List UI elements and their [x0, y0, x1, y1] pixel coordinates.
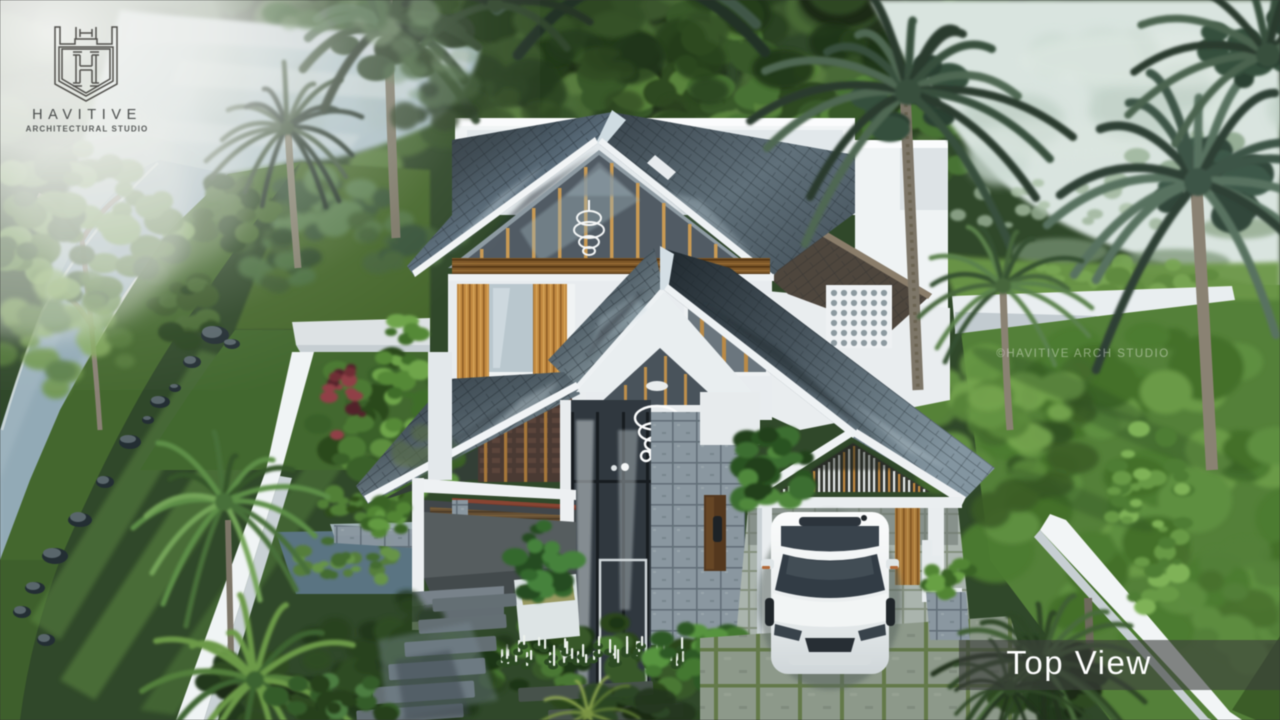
- svg-text:HAVITIVE: HAVITIVE: [32, 107, 142, 123]
- svg-text:Top View: Top View: [1006, 644, 1151, 681]
- svg-text:©HAVITIVE ARCH STUDIO: ©HAVITIVE ARCH STUDIO: [996, 348, 1169, 360]
- svg-text:ARCHITECTURAL STUDIO: ARCHITECTURAL STUDIO: [26, 125, 149, 134]
